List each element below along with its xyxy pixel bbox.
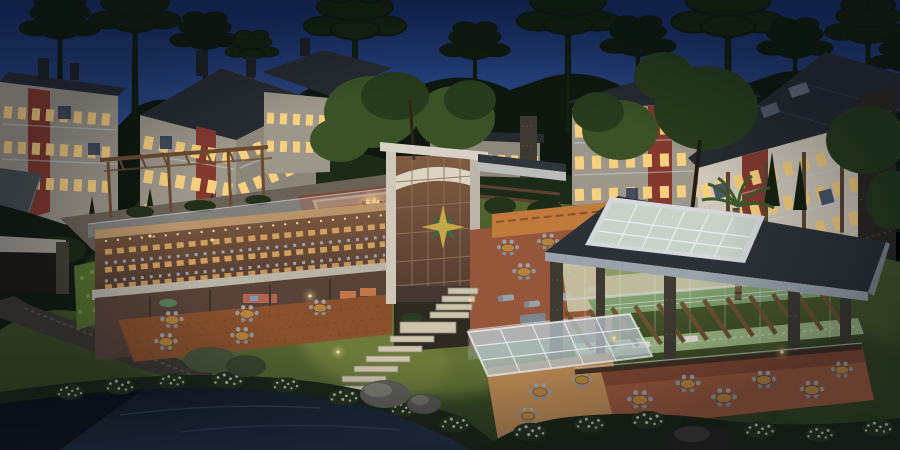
resort-rendering xyxy=(0,0,900,450)
vignette-overlay xyxy=(0,0,900,450)
rendering-canvas xyxy=(0,0,900,450)
